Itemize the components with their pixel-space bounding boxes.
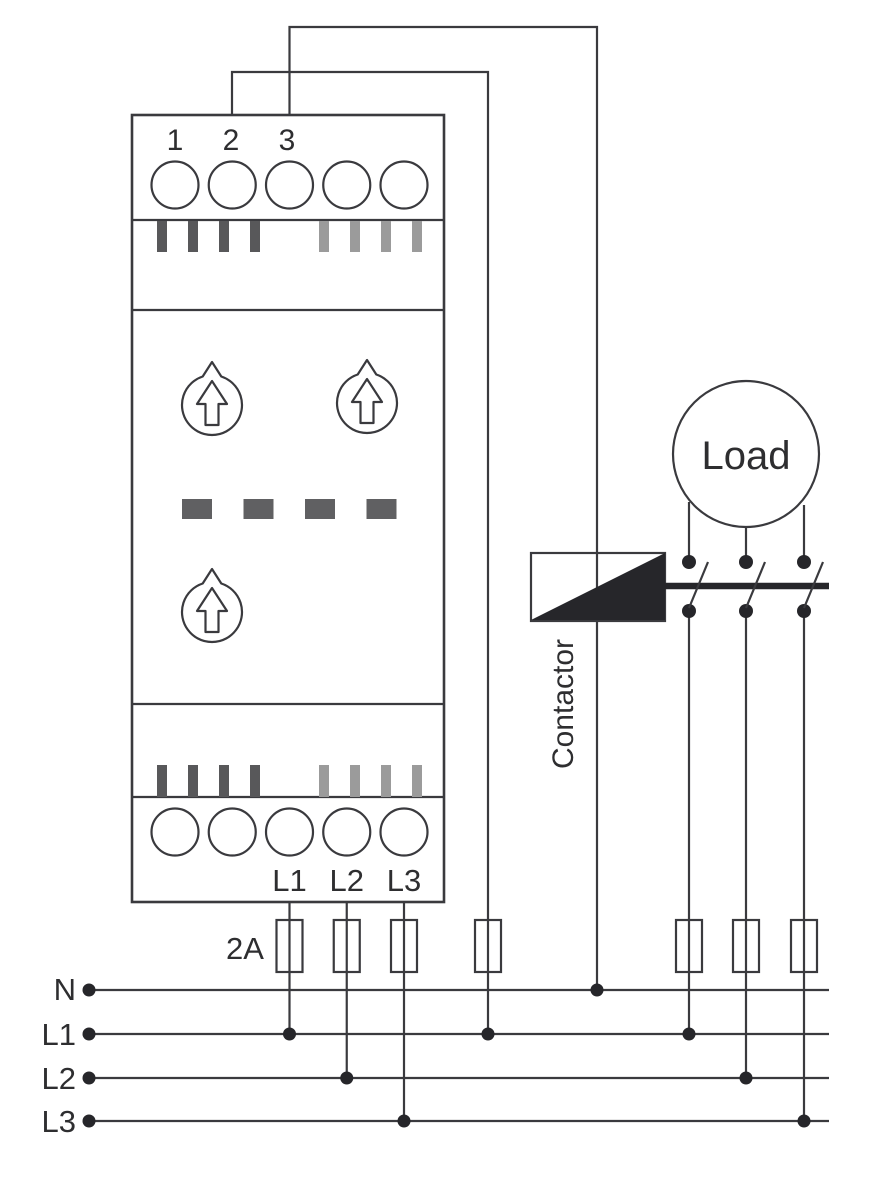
bus-start-dot [83,1115,96,1128]
terminal-screw [209,809,256,856]
display-dash [305,499,335,519]
junction-dot [591,984,604,997]
terminal-screw [323,162,370,209]
terminal-label-l2: L2 [330,863,364,898]
fuse-rating-label: 2A [226,931,264,966]
load-label: Load [702,434,791,478]
connector-slot-light [350,765,360,797]
connector-slot-light [381,221,391,252]
junction-dot [283,1028,296,1041]
display-dash [367,499,397,519]
junction-dot [340,1072,353,1085]
terminal-screw [152,809,199,856]
bus-start-dot [83,984,96,997]
terminal-screw [381,809,428,856]
junction-dot [740,1072,753,1085]
terminal-screw [266,809,313,856]
terminal-label-3: 3 [279,124,296,157]
connector-slot-light [319,765,329,797]
bottom-terminal-screws [152,809,428,856]
connector-slot-light [412,765,422,797]
contactor: Contactor [531,553,829,769]
bus-start-dot [83,1072,96,1085]
contact-dot [739,555,753,569]
connector-slot-dark [157,221,167,252]
junction-dot [683,1028,696,1041]
terminal-label-1: 1 [167,124,184,157]
connector-slot-dark [250,221,260,252]
terminal-screw [323,809,370,856]
connector-slot-dark [188,221,198,252]
connector-slot-dark [157,765,167,797]
wiring-diagram: 1 2 3 [0,0,874,1180]
bus-start-dot [83,1028,96,1041]
connector-slot-dark [219,221,229,252]
supply-bus: N L1 L2 L3 [42,972,829,1139]
contact-dot [797,555,811,569]
connector-slot-light [412,221,422,252]
junction-dot [398,1115,411,1128]
display-dash [182,499,212,519]
bus-label-l2: L2 [42,1061,76,1096]
connector-slot-dark [250,765,260,797]
monitoring-relay-device: 1 2 3 [132,115,444,902]
terminal-screw [266,162,313,209]
terminal-screw [209,162,256,209]
junction-dot [482,1028,495,1041]
load: Load [673,381,819,527]
terminal-screw [381,162,428,209]
terminal-screw [152,162,199,209]
wiring-diagram-page: 1 2 3 [0,0,874,1180]
top-terminal-screws [152,162,428,209]
bus-label-l1: L1 [42,1017,76,1052]
connector-slot-light [350,221,360,252]
terminal-label-2: 2 [223,124,240,157]
terminal-label-l3: L3 [387,863,421,898]
junction-dot [798,1115,811,1128]
connector-slot-dark [219,765,229,797]
fuses: 2A [226,920,817,972]
display-dash [244,499,274,519]
connector-slot-light [381,765,391,797]
device-body [132,115,444,902]
contact-dot [682,555,696,569]
bus-label-n: N [54,972,76,1007]
connector-slot-light [319,221,329,252]
terminal-label-l1: L1 [272,863,306,898]
connector-slot-dark [188,765,198,797]
bus-label-l3: L3 [42,1104,76,1139]
contactor-label: Contactor [547,639,580,769]
